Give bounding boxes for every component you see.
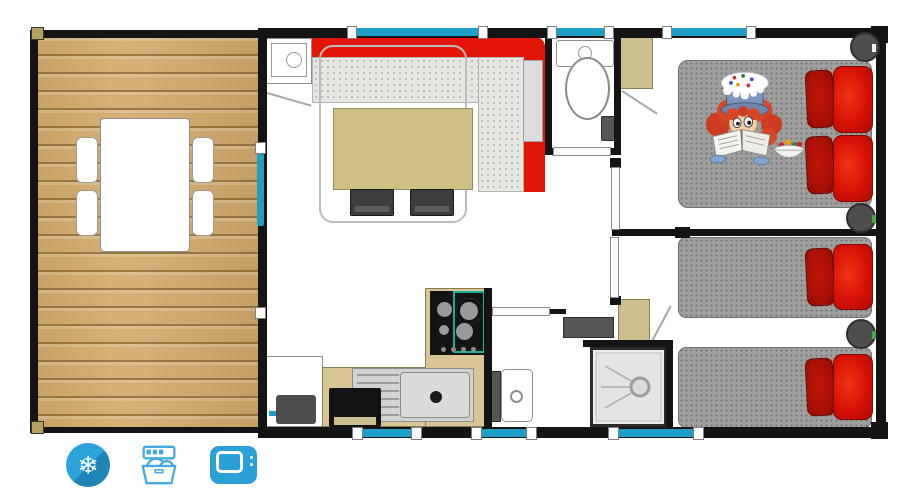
bedroom-divider-wall	[612, 229, 886, 236]
lamp-indicator	[872, 215, 876, 223]
deck-chair	[192, 190, 214, 236]
tv-button	[250, 463, 253, 466]
hob-knob	[441, 347, 446, 352]
deck-chair	[76, 137, 98, 183]
hob-burner-medium	[437, 302, 452, 317]
window-bracket	[411, 427, 422, 440]
coffee-table	[333, 108, 473, 190]
tv-button	[250, 456, 253, 459]
cabinet-open-door-line	[267, 92, 312, 107]
single-bed-pillow-small	[805, 357, 836, 416]
divider-wall-post	[675, 227, 690, 238]
slipper	[710, 155, 726, 163]
window-bracket	[352, 427, 363, 440]
double-bed-pillow	[833, 135, 873, 202]
stool	[350, 189, 394, 216]
sofa-side-table	[523, 60, 543, 142]
deck-wall-top	[30, 30, 262, 38]
single-bed-pillow	[833, 354, 873, 420]
bathroom-door	[492, 307, 550, 316]
sofa-seat-right	[478, 57, 524, 192]
double-bed-pillow	[833, 66, 873, 133]
window-top-bedroom	[668, 28, 752, 36]
bathroom-shelf	[563, 317, 614, 338]
door-bracket	[255, 307, 266, 319]
hob-knob	[461, 347, 466, 352]
fridge-drawer	[276, 395, 316, 424]
window-bracket	[662, 26, 672, 39]
kitchen-bathroom-wall	[484, 288, 492, 427]
outdoor-dining-table	[100, 118, 190, 252]
hall-closet	[618, 299, 650, 346]
window-bracket	[526, 427, 537, 440]
window-bottom-bedroom	[614, 429, 698, 437]
sink-drain	[430, 391, 442, 403]
window-bracket	[478, 26, 488, 39]
deck-wall-bottom	[30, 427, 262, 433]
deck-corner-post-bottom	[31, 421, 44, 434]
window-bracket	[471, 427, 482, 440]
hob-knob	[471, 347, 476, 352]
shower-wall-top	[583, 340, 673, 347]
bedroom-double-door	[611, 167, 620, 230]
floorplan-canvas: ❄	[0, 0, 900, 500]
window-bracket	[746, 26, 756, 39]
single-bed-pillow	[833, 244, 873, 310]
sink-basin	[400, 372, 470, 418]
deck-corner-post-top	[31, 27, 44, 40]
appliance-dial	[286, 52, 302, 68]
double-bed-pillow-small	[805, 69, 836, 128]
lamp-indicator	[872, 44, 876, 52]
snowflake-icon: ❄	[78, 453, 99, 478]
bathroom-wall-stub	[550, 309, 566, 314]
shower-tray	[590, 347, 667, 427]
dishwasher-icon	[136, 441, 182, 489]
window-bracket	[604, 26, 614, 39]
hob-trim	[453, 291, 485, 353]
oven	[329, 388, 381, 427]
entrance-door-glass	[257, 154, 264, 226]
window-bracket	[693, 427, 704, 440]
candy-bowl-illustration	[770, 136, 808, 166]
tv-icon	[210, 446, 257, 484]
hob-knob	[451, 347, 456, 352]
fridge-handle	[269, 411, 276, 416]
wc-door	[553, 147, 611, 156]
deck-wall-left	[30, 30, 38, 433]
single-bed-pillow-small	[805, 247, 836, 306]
shower-wall-right	[666, 340, 673, 434]
washbasin	[501, 369, 533, 422]
hob-burner-small	[439, 325, 449, 335]
kitchenette-tall-unit	[266, 38, 312, 84]
deck-chair	[192, 137, 214, 183]
building-corner-bottom-right	[871, 422, 888, 439]
bedroom-twin-door	[610, 237, 619, 298]
kitchenette-appliance	[271, 43, 307, 77]
fridge-unit	[266, 356, 323, 427]
slipper	[754, 157, 770, 165]
window-top-living	[353, 28, 483, 36]
toilet	[565, 57, 610, 120]
window-bottom-bathroom	[477, 429, 531, 437]
deck-chair	[76, 190, 98, 236]
oven-front-strip	[334, 417, 376, 425]
lamp-indicator	[872, 331, 876, 339]
washbasin-tap	[510, 390, 523, 403]
tv-screen	[216, 451, 243, 473]
building-wall-left	[258, 28, 267, 438]
window-bracket	[347, 26, 357, 39]
gas-hob	[430, 291, 487, 355]
air-conditioning-badge: ❄	[66, 443, 110, 487]
door-bracket	[255, 142, 266, 154]
wc-wall-right	[614, 38, 621, 155]
window-top-wc	[553, 28, 610, 36]
double-bed-pillow-small	[805, 135, 836, 194]
window-bracket	[608, 427, 619, 440]
wardrobe-top	[620, 36, 653, 89]
wc-wall-left	[545, 38, 552, 155]
stool	[410, 189, 454, 216]
window-bottom-kitchen	[358, 429, 416, 437]
window-bracket	[547, 26, 557, 39]
wardrobe-open-door-line	[621, 90, 657, 115]
shower-tray-detail	[593, 350, 664, 424]
